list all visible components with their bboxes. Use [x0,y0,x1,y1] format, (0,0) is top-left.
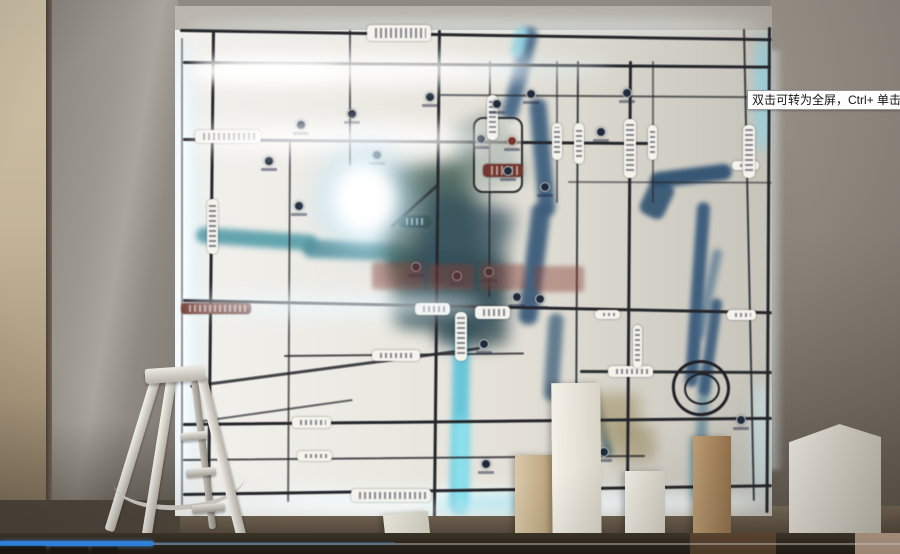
foreground-box [551,383,601,554]
fullscreen-tooltip: 双击可转为全屏，Ctrl+ 单击可转为 [747,90,900,110]
ladder-step [192,503,226,514]
video-frame[interactable]: 双击可转为全屏，Ctrl+ 单击可转为 [0,0,900,554]
video-seekbar-progress[interactable] [0,541,153,546]
video-seekbar-buffer [150,542,395,545]
step-ladder [95,362,345,554]
